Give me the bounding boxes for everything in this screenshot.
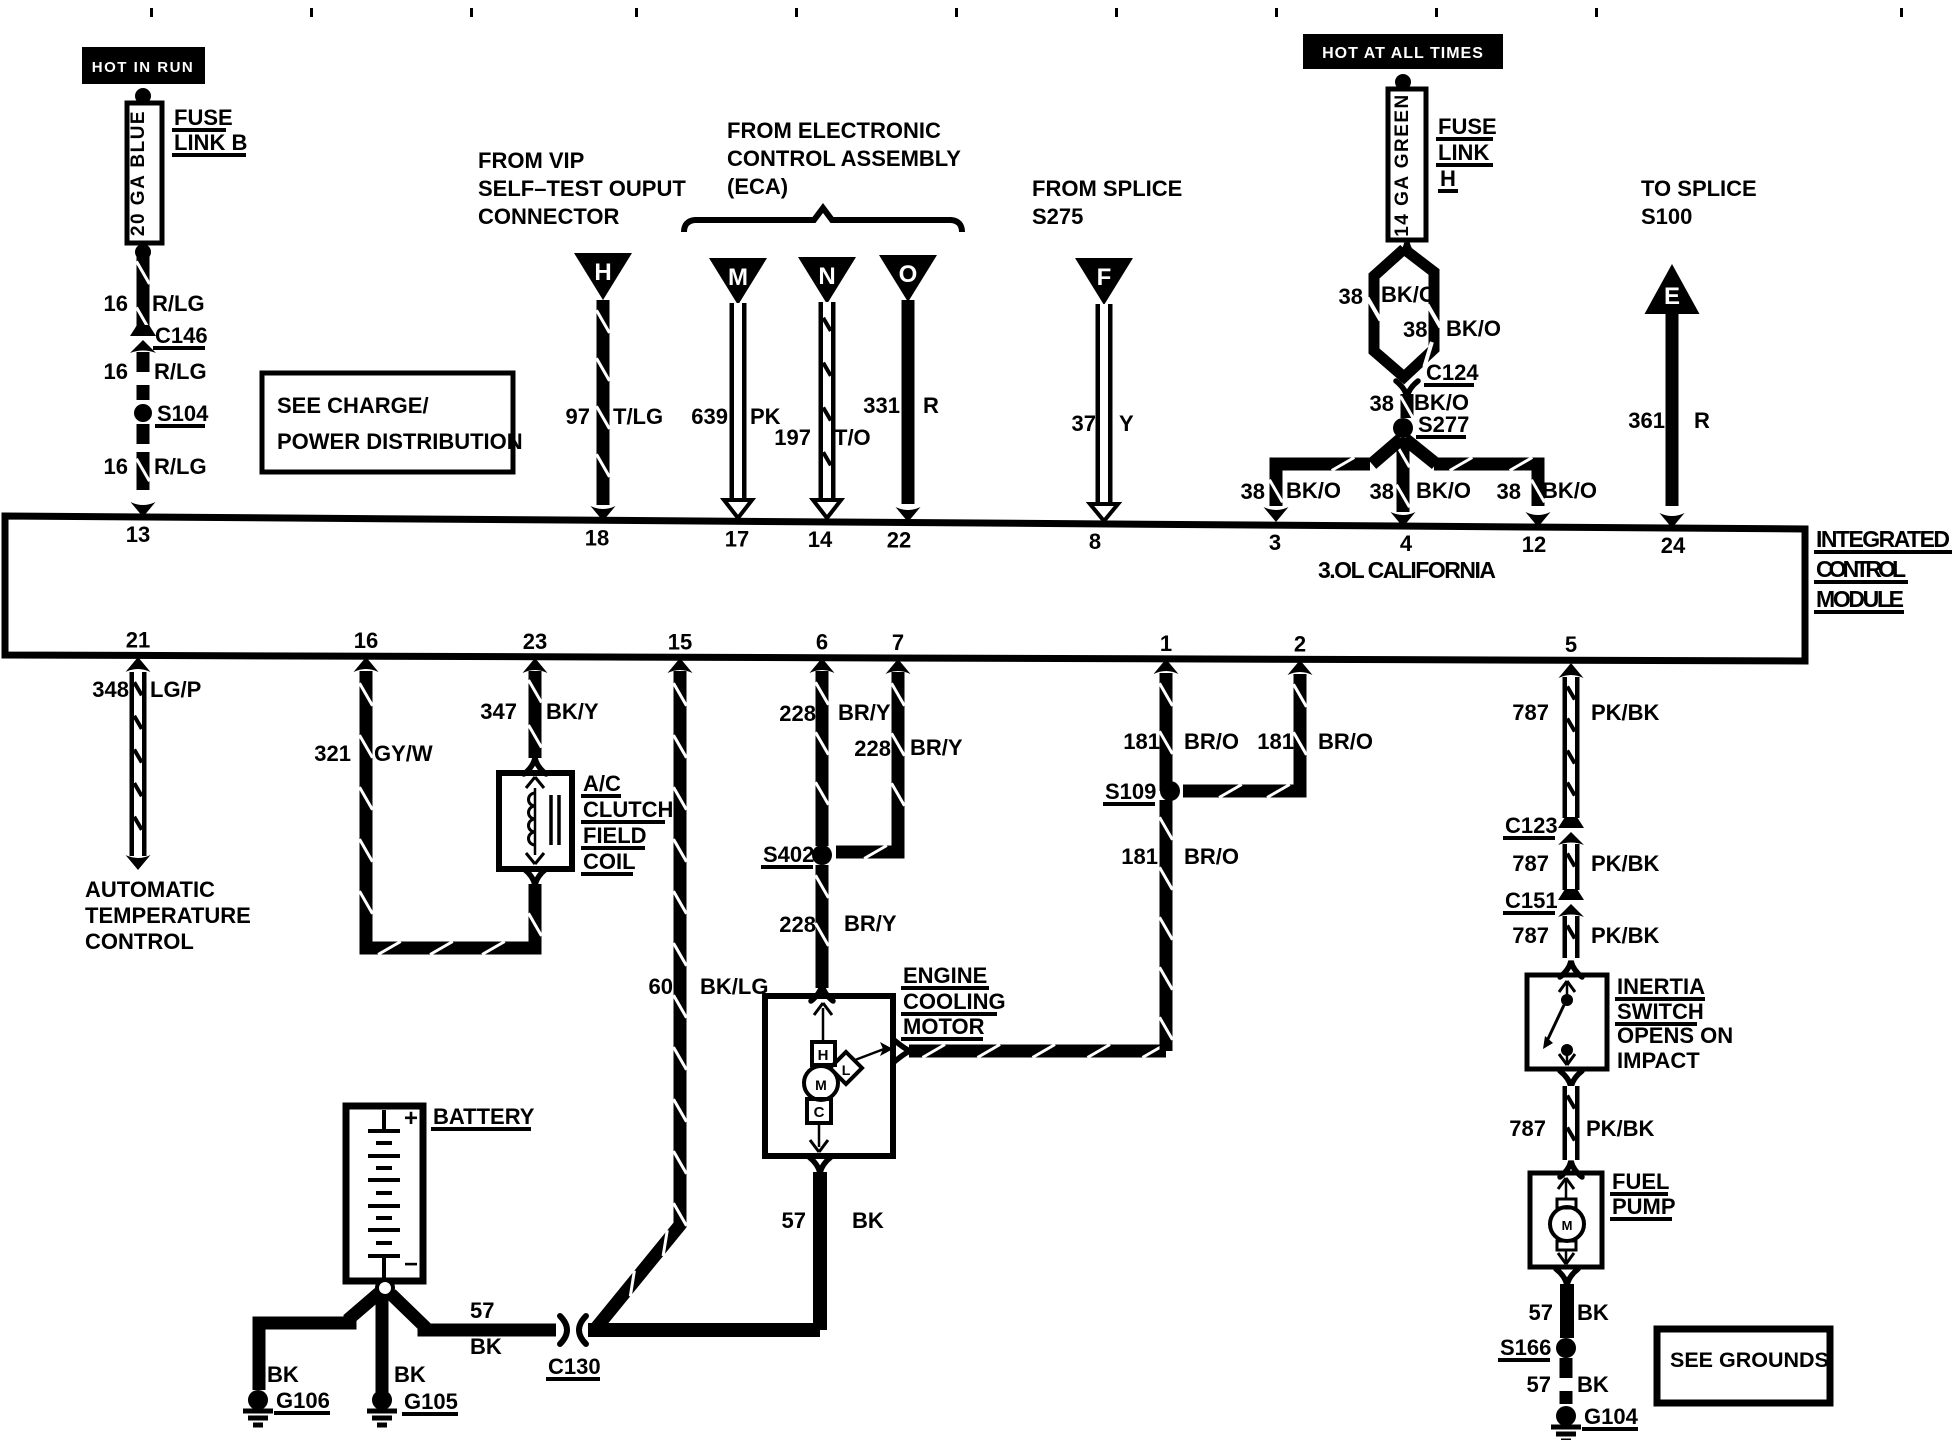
svg-text:FUEL: FUEL [1612,1169,1669,1194]
svg-text:L: L [842,1062,851,1078]
svg-text:R/LG: R/LG [154,454,207,479]
svg-text:16: 16 [104,454,128,479]
svg-text:331: 331 [863,393,900,418]
svg-text:PK/BK: PK/BK [1586,1116,1655,1141]
svg-text:BK/O: BK/O [1542,478,1597,503]
svg-text:57: 57 [1527,1372,1551,1397]
svg-text:FIELD: FIELD [583,823,647,848]
svg-text:787: 787 [1512,851,1549,876]
svg-text:6: 6 [816,630,828,655]
svg-text:5: 5 [1565,632,1577,657]
svg-text:CONTROL: CONTROL [1816,556,1906,582]
svg-text:LG/P: LG/P [150,677,201,702]
svg-text:BR/O: BR/O [1318,729,1373,754]
svg-text:16: 16 [104,359,128,384]
svg-text:14: 14 [808,527,833,552]
svg-text:PK/BK: PK/BK [1591,851,1660,876]
svg-text:57: 57 [1529,1300,1553,1325]
svg-text:C123: C123 [1505,813,1558,838]
svg-text:57: 57 [782,1208,806,1233]
svg-text:T/O: T/O [834,425,871,450]
svg-text:181: 181 [1257,729,1294,754]
svg-text:228: 228 [854,736,891,761]
svg-text:INTEGRATED: INTEGRATED [1816,526,1950,552]
svg-text:37: 37 [1072,411,1096,436]
svg-text:18: 18 [585,525,609,550]
svg-text:38: 38 [1370,391,1394,416]
svg-text:97: 97 [566,404,590,429]
svg-text:BK: BK [1577,1372,1609,1397]
svg-text:16: 16 [104,291,128,316]
svg-text:R/LG: R/LG [154,359,207,384]
svg-text:17: 17 [725,526,749,551]
svg-text:BK: BK [267,1362,299,1387]
svg-text:21: 21 [126,627,150,652]
svg-text:G106: G106 [276,1388,330,1413]
svg-text:SELF–TEST OUPUT: SELF–TEST OUPUT [478,176,686,201]
svg-text:−: − [404,1251,418,1278]
svg-text:23: 23 [523,629,547,654]
svg-text:CONNECTOR: CONNECTOR [478,204,619,229]
svg-text:CONTROL ASSEMBLY: CONTROL ASSEMBLY [727,146,961,171]
svg-text:FROM SPLICE: FROM SPLICE [1032,176,1182,201]
svg-text:3.OL CALIFORNIA: 3.OL CALIFORNIA [1318,557,1496,583]
svg-text:38: 38 [1339,284,1363,309]
svg-text:Y: Y [1119,411,1134,436]
svg-text:PK/BK: PK/BK [1591,923,1660,948]
svg-text:639: 639 [691,404,728,429]
svg-text:SEE CHARGE/: SEE CHARGE/ [277,393,429,418]
svg-text:BR/Y: BR/Y [838,700,891,725]
svg-text:BK: BK [852,1208,884,1233]
svg-text:12: 12 [1522,532,1546,557]
svg-text:H: H [594,259,611,286]
svg-text:14 GA GREEN: 14 GA GREEN [1392,93,1413,237]
svg-text:INERTIA: INERTIA [1617,974,1705,999]
svg-text:228: 228 [779,701,816,726]
svg-text:60: 60 [649,974,673,999]
svg-text:24: 24 [1661,533,1686,558]
svg-text:197: 197 [774,425,811,450]
svg-text:H: H [1440,166,1456,191]
svg-text:+: + [404,1105,418,1132]
svg-text:MOTOR: MOTOR [903,1014,985,1039]
svg-text:38: 38 [1241,479,1265,504]
svg-text:LINK B: LINK B [174,130,247,155]
svg-text:S109: S109 [1105,779,1156,804]
svg-text:E: E [1664,283,1680,310]
svg-text:7: 7 [892,630,904,655]
svg-text:IMPACT: IMPACT [1617,1048,1700,1073]
svg-text:787: 787 [1509,1116,1546,1141]
svg-text:BK: BK [1577,1300,1609,1325]
svg-text:N: N [818,263,835,290]
svg-text:22: 22 [887,527,911,552]
svg-text:LINK: LINK [1438,140,1489,165]
svg-text:G104: G104 [1584,1404,1639,1429]
svg-text:321: 321 [314,741,351,766]
svg-text:COOLING: COOLING [903,989,1006,1014]
svg-text:MODULE: MODULE [1816,586,1904,612]
svg-text:C: C [814,1104,825,1121]
svg-text:PUMP: PUMP [1612,1194,1676,1219]
svg-text:BK/O: BK/O [1416,478,1471,503]
svg-text:BR/Y: BR/Y [910,735,963,760]
svg-text:S100: S100 [1641,204,1692,229]
svg-text:M: M [815,1077,827,1093]
svg-text:FUSE: FUSE [1438,114,1497,139]
svg-text:13: 13 [126,522,150,547]
svg-text:M: M [1562,1218,1573,1233]
svg-text:2: 2 [1294,631,1306,656]
svg-text:FROM ELECTRONIC: FROM ELECTRONIC [727,118,941,143]
svg-text:S402: S402 [763,842,814,867]
svg-text:BK/O: BK/O [1286,478,1341,503]
svg-text:347: 347 [480,699,517,724]
svg-text:BR/O: BR/O [1184,729,1239,754]
svg-text:T/LG: T/LG [613,404,663,429]
svg-text:16: 16 [354,628,378,653]
svg-text:HOT IN RUN: HOT IN RUN [92,59,195,76]
svg-text:181: 181 [1123,729,1160,754]
svg-text:1: 1 [1160,631,1172,656]
svg-text:4: 4 [1400,531,1413,556]
svg-text:BK: BK [394,1362,426,1387]
svg-text:BK/O: BK/O [1446,316,1501,341]
svg-text:HOT AT ALL TIMES: HOT AT ALL TIMES [1322,45,1484,62]
svg-text:OPENS ON: OPENS ON [1617,1023,1733,1048]
svg-text:BATTERY: BATTERY [433,1104,535,1129]
svg-text:15: 15 [668,629,692,654]
svg-text:38: 38 [1497,479,1521,504]
svg-text:C146: C146 [155,323,208,348]
svg-text:361: 361 [1628,408,1665,433]
svg-text:C151: C151 [1505,888,1558,913]
svg-text:POWER DISTRIBUTION: POWER DISTRIBUTION [277,429,523,454]
svg-text:TEMPERATURE: TEMPERATURE [85,903,251,928]
svg-text:BK/Y: BK/Y [546,699,599,724]
svg-text:GY/W: GY/W [374,741,433,766]
svg-text:8: 8 [1089,529,1101,554]
svg-text:3: 3 [1269,530,1281,555]
svg-text:PK/BK: PK/BK [1591,700,1660,725]
svg-text:H: H [818,1047,829,1064]
svg-text:38: 38 [1403,317,1427,342]
svg-text:57: 57 [470,1298,494,1323]
svg-text:BK/O: BK/O [1381,282,1436,307]
svg-text:R: R [1694,408,1710,433]
svg-text:S275: S275 [1032,204,1083,229]
svg-text:787: 787 [1512,923,1549,948]
svg-text:S277: S277 [1418,412,1469,437]
svg-text:O: O [899,261,918,288]
svg-text:348: 348 [92,677,129,702]
svg-text:BR/O: BR/O [1184,844,1239,869]
svg-text:AUTOMATIC: AUTOMATIC [85,877,215,902]
svg-text:BK/LG: BK/LG [700,974,768,999]
svg-text:787: 787 [1512,700,1549,725]
svg-text:BK: BK [470,1334,502,1359]
svg-text:R/LG: R/LG [152,291,205,316]
svg-text:TO SPLICE: TO SPLICE [1641,176,1757,201]
svg-text:CONTROL: CONTROL [85,929,194,954]
svg-text:CLUTCH: CLUTCH [583,797,673,822]
svg-text:181: 181 [1121,844,1158,869]
svg-text:FROM VIP: FROM VIP [478,148,584,173]
svg-text:A/C: A/C [583,771,621,796]
svg-text:M: M [728,264,748,291]
svg-text:SWITCH: SWITCH [1617,999,1704,1024]
svg-text:S104: S104 [157,401,209,426]
svg-text:C130: C130 [548,1354,601,1379]
svg-text:BR/Y: BR/Y [844,911,897,936]
svg-text:(ECA): (ECA) [727,174,788,199]
svg-text:ENGINE: ENGINE [903,963,987,988]
svg-text:R: R [923,393,939,418]
svg-text:F: F [1097,264,1112,291]
svg-text:COIL: COIL [583,849,636,874]
svg-text:20 GA BLUE: 20 GA BLUE [128,110,149,236]
svg-text:FUSE: FUSE [174,105,233,130]
svg-text:G105: G105 [404,1389,458,1414]
svg-text:228: 228 [779,912,816,937]
svg-text:C124: C124 [1426,360,1479,385]
svg-text:S166: S166 [1500,1335,1551,1360]
svg-text:SEE GROUNDS: SEE GROUNDS [1670,1348,1829,1372]
svg-text:38: 38 [1370,479,1394,504]
